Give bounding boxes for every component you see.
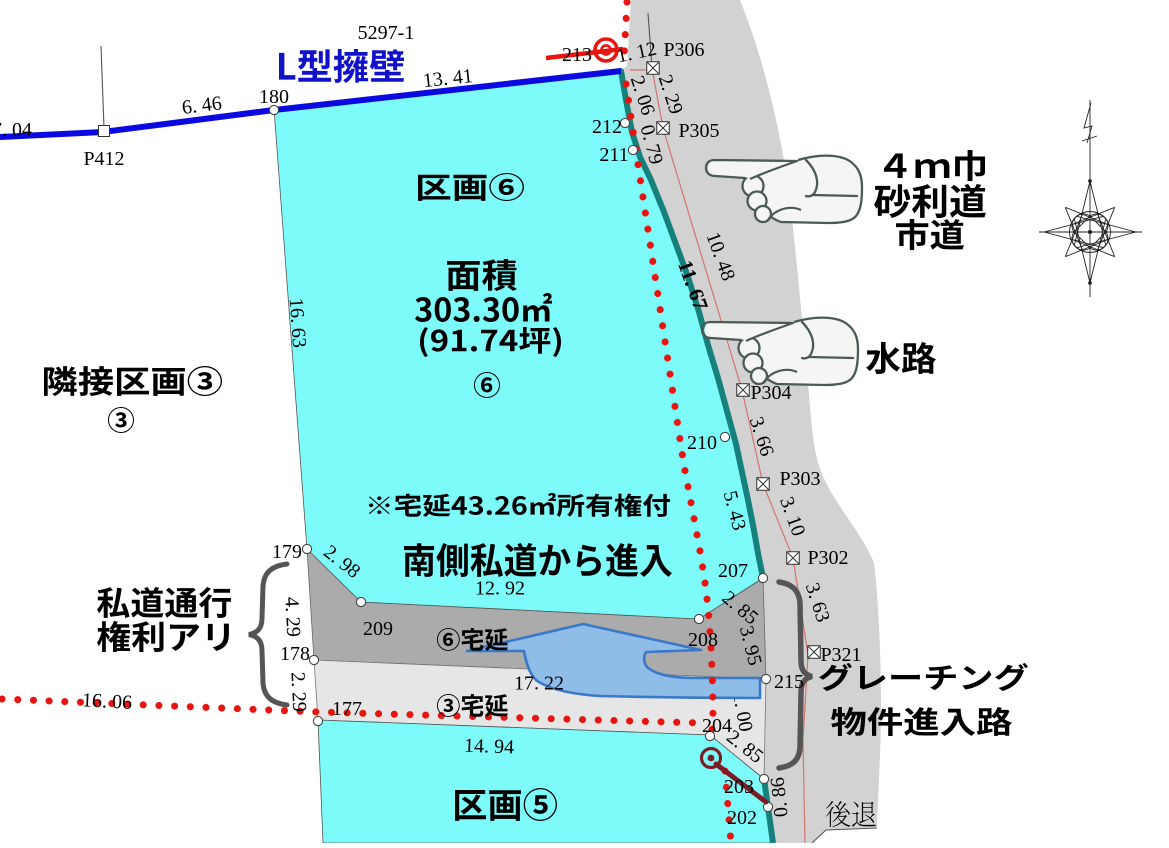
svg-text:P304: P304 xyxy=(750,382,791,404)
svg-text:212: 212 xyxy=(592,116,622,138)
svg-text:179: 179 xyxy=(272,541,302,563)
svg-text:16. 63: 16. 63 xyxy=(285,297,310,348)
svg-text:213: 213 xyxy=(562,44,592,66)
svg-text:5297-1: 5297-1 xyxy=(358,22,415,44)
svg-text:208: 208 xyxy=(688,629,718,651)
svg-text:4. 29: 4. 29 xyxy=(280,596,304,637)
svg-text:207: 207 xyxy=(718,560,748,582)
svg-text:16. 06: 16. 06 xyxy=(82,689,133,714)
svg-text:17. 22: 17. 22 xyxy=(514,673,564,695)
svg-text:14. 94: 14. 94 xyxy=(464,735,515,759)
svg-text:210: 210 xyxy=(687,432,717,454)
svg-text:P306: P306 xyxy=(663,39,704,61)
svg-text:203: 203 xyxy=(724,776,754,798)
svg-text:178: 178 xyxy=(280,643,310,665)
svg-text:202: 202 xyxy=(727,807,757,829)
svg-text:2. 29: 2. 29 xyxy=(286,671,310,712)
svg-text:12. 92: 12. 92 xyxy=(475,578,525,600)
svg-text:215: 215 xyxy=(774,671,804,693)
svg-text:204: 204 xyxy=(702,715,732,737)
svg-text:7. 04: 7. 04 xyxy=(0,119,32,141)
svg-text:209: 209 xyxy=(363,618,393,640)
svg-text:211: 211 xyxy=(599,144,628,166)
svg-text:P321: P321 xyxy=(820,644,861,666)
svg-text:P412: P412 xyxy=(83,148,124,170)
svg-text:P303: P303 xyxy=(779,468,820,490)
svg-text:P305: P305 xyxy=(678,120,719,142)
svg-text:180: 180 xyxy=(259,86,289,108)
svg-text:177: 177 xyxy=(332,698,362,720)
svg-text:0. 86: 0. 86 xyxy=(767,776,793,818)
svg-text:P302: P302 xyxy=(807,547,848,569)
